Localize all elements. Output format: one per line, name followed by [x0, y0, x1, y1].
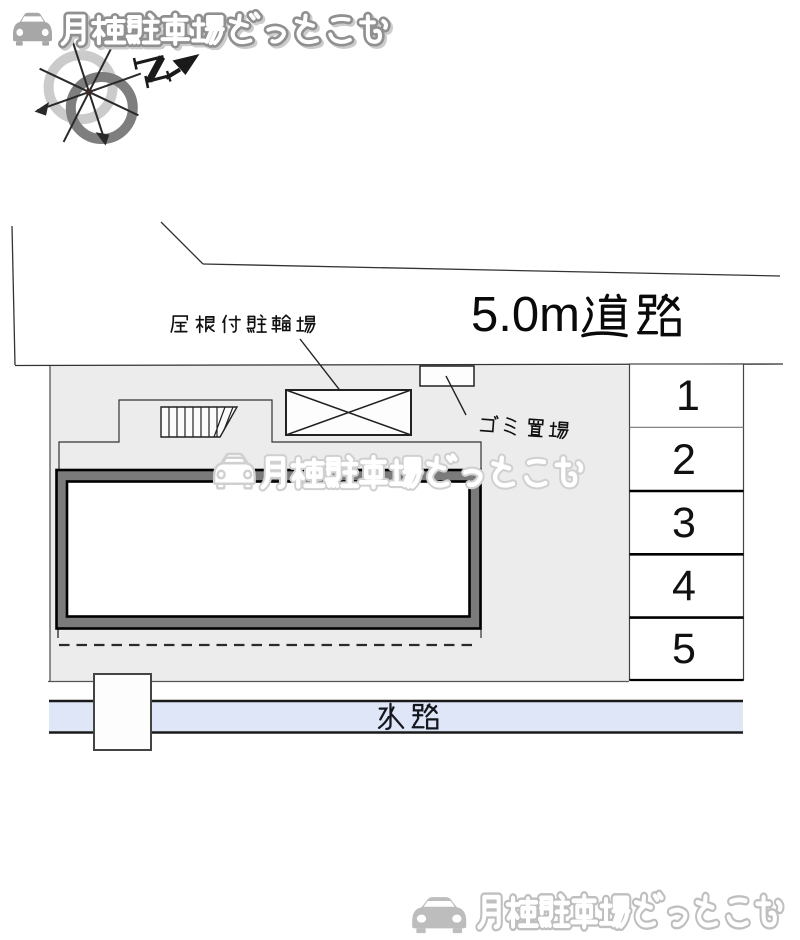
svg-text:2: 2	[672, 436, 696, 484]
svg-text:4: 4	[672, 562, 696, 610]
svg-text:5: 5	[672, 625, 696, 673]
svg-text:3: 3	[672, 499, 696, 547]
svg-text:1: 1	[676, 372, 700, 420]
svg-text:5.0m: 5.0m	[471, 288, 580, 342]
